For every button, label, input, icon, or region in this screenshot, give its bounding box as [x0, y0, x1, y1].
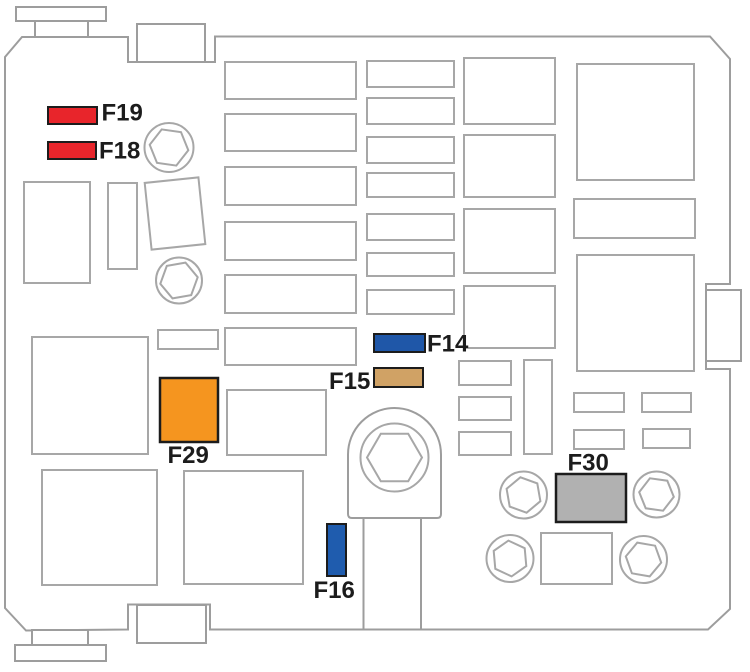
svg-text:F19: F19	[102, 100, 143, 127]
svg-text:F16: F16	[314, 577, 355, 604]
svg-text:F30: F30	[568, 450, 609, 477]
svg-text:F15: F15	[329, 368, 370, 395]
svg-text:F18: F18	[99, 138, 140, 165]
svg-text:F29: F29	[168, 442, 209, 469]
svg-text:F14: F14	[427, 331, 469, 358]
